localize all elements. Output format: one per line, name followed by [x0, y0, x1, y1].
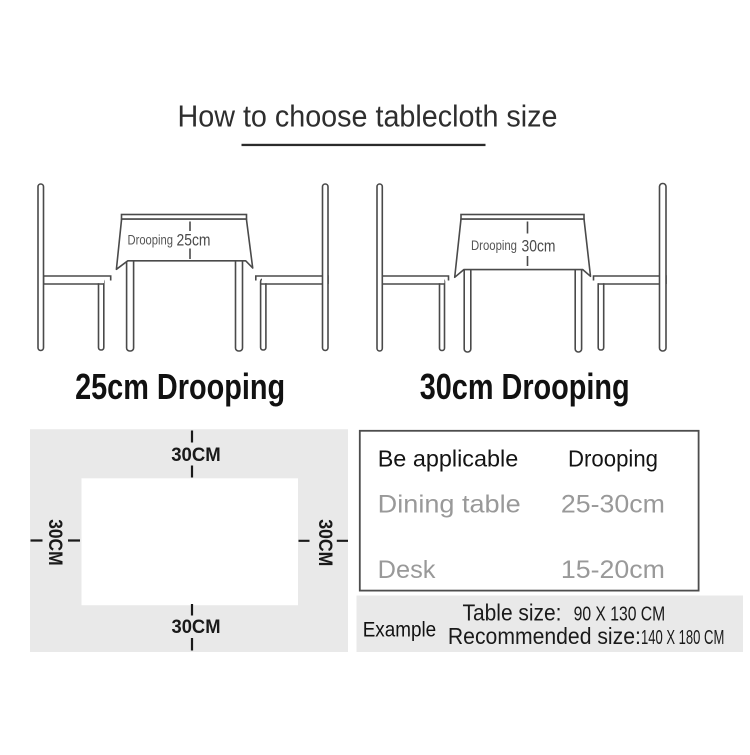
- svg-text:Drooping: Drooping: [128, 233, 174, 248]
- svg-text:30CM: 30CM: [314, 519, 335, 566]
- svg-text:30cm: 30cm: [522, 237, 556, 255]
- svg-text:140 X 180 CM: 140 X 180 CM: [641, 627, 724, 649]
- svg-text:How to choose tablecloth size: How to choose tablecloth size: [178, 98, 558, 133]
- svg-text:25cm Drooping: 25cm Drooping: [75, 366, 285, 407]
- svg-text:Be applicable: Be applicable: [378, 446, 519, 472]
- svg-text:Desk: Desk: [378, 556, 436, 584]
- svg-text:30CM: 30CM: [171, 445, 221, 466]
- svg-text:Drooping: Drooping: [471, 238, 517, 253]
- svg-text:30CM: 30CM: [172, 617, 221, 638]
- svg-text:Table size:: Table size:: [463, 600, 562, 626]
- svg-text:25cm: 25cm: [177, 232, 211, 250]
- svg-text:Example: Example: [363, 618, 437, 641]
- svg-text:15-20cm: 15-20cm: [561, 556, 665, 584]
- svg-text:Dining table: Dining table: [378, 491, 521, 519]
- svg-text:Drooping: Drooping: [568, 446, 658, 472]
- svg-text:30CM: 30CM: [44, 519, 65, 565]
- svg-text:25-30cm: 25-30cm: [561, 491, 665, 519]
- svg-text:30cm Drooping: 30cm Drooping: [420, 366, 630, 407]
- svg-text:Recommended size:: Recommended size:: [448, 623, 641, 649]
